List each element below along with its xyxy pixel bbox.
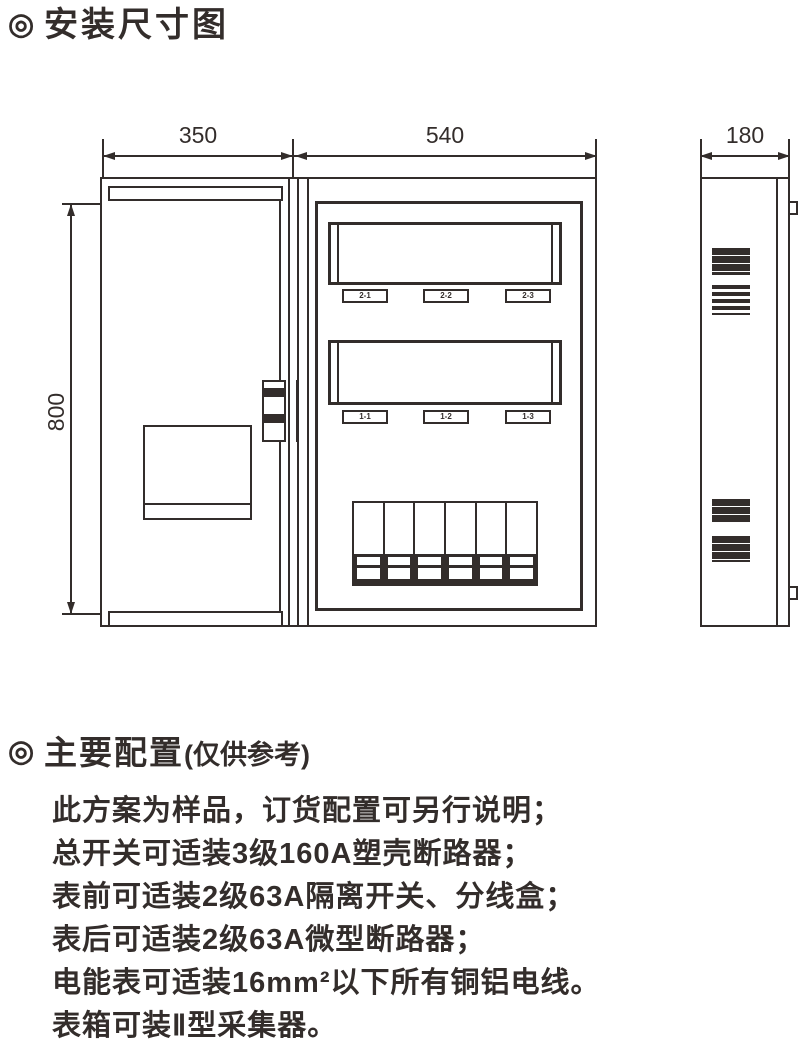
dim-line-180 (700, 155, 790, 157)
side-top-tab (788, 201, 798, 215)
config-line: 此方案为样品，订货配置可另行说明； (52, 790, 601, 833)
pocket-rail-line (144, 503, 251, 505)
box-edge-line (307, 179, 309, 625)
config-line: 电能表可适装16mm²以下所有铜铝电线。 (52, 962, 601, 1005)
breaker-unit (505, 501, 538, 586)
breaker-unit (475, 501, 508, 586)
config-line: 表前可适装2级63A隔离开关、分线盒； (52, 876, 601, 919)
section-bullet-icon: ◎ (8, 737, 34, 767)
arrow-icon (295, 152, 307, 160)
top-bridge-line (288, 177, 300, 179)
extension-line (788, 139, 790, 177)
hinge-band (264, 414, 284, 423)
meter-window-row1 (328, 340, 562, 405)
breaker-unit (383, 501, 416, 586)
arrow-icon (67, 204, 75, 216)
breaker-unit (352, 501, 385, 586)
extension-line (102, 139, 104, 177)
vent-louver (712, 285, 750, 315)
dim-line-350 (103, 155, 293, 157)
config-line: 总开关可适装3级160A塑壳断路器； (52, 833, 601, 876)
side-door-thickness-line (776, 179, 778, 625)
breaker-bank (352, 501, 538, 586)
window-mullion (551, 225, 553, 282)
window-mullion (551, 343, 553, 402)
meter-name-plate: 1-1 (342, 410, 388, 424)
window-mullion (337, 343, 339, 402)
config-line: 表后可适装2级63A微型断路器； (52, 919, 601, 962)
catalog-page: ◎ 安装尺寸图 350 540 180 800 (0, 0, 800, 1055)
hinge-band (264, 388, 284, 397)
meter-name-plate: 2-3 (505, 289, 551, 303)
meter-name-plate: 1-2 (423, 410, 469, 424)
window-mullion (337, 225, 339, 282)
bottom-bridge-line (288, 625, 300, 627)
side-hinge-block (712, 499, 750, 523)
meter-name-plate: 1-3 (505, 410, 551, 424)
config-heading-note: (仅供参考) (184, 740, 310, 770)
side-bottom-tab (788, 586, 798, 600)
side-hinge-block (712, 536, 750, 562)
door-document-pocket (143, 425, 252, 520)
config-heading-row: 主要配置(仅供参考) (44, 733, 310, 772)
meter-name-plate: 2-2 (423, 289, 469, 303)
meter-window-row2 (328, 222, 562, 285)
dim-door-width-label: 350 (103, 122, 293, 149)
door-top-flange (108, 186, 283, 201)
extension-line (292, 139, 294, 177)
door-bottom-flange (108, 611, 283, 627)
config-heading: 主要配置 (44, 734, 184, 771)
side-hinge-block (712, 248, 750, 275)
extension-line (595, 139, 597, 177)
installation-drawing: 350 540 180 800 (0, 0, 800, 700)
config-lines: 此方案为样品，订货配置可另行说明； 总开关可适装3级160A塑壳断路器； 表前可… (52, 790, 601, 1048)
arrow-icon (103, 152, 115, 160)
dim-line-540 (293, 155, 597, 157)
hinge (262, 380, 286, 442)
dim-line-800 (70, 204, 72, 614)
dim-side-width-label: 180 (700, 122, 790, 149)
breaker-unit (413, 501, 446, 586)
dim-box-width-label: 540 (293, 122, 597, 149)
extension-line (700, 139, 702, 177)
config-line: 表箱可装Ⅱ型采集器。 (52, 1005, 601, 1048)
breaker-unit (444, 501, 477, 586)
meter-name-plate: 2-1 (342, 289, 388, 303)
